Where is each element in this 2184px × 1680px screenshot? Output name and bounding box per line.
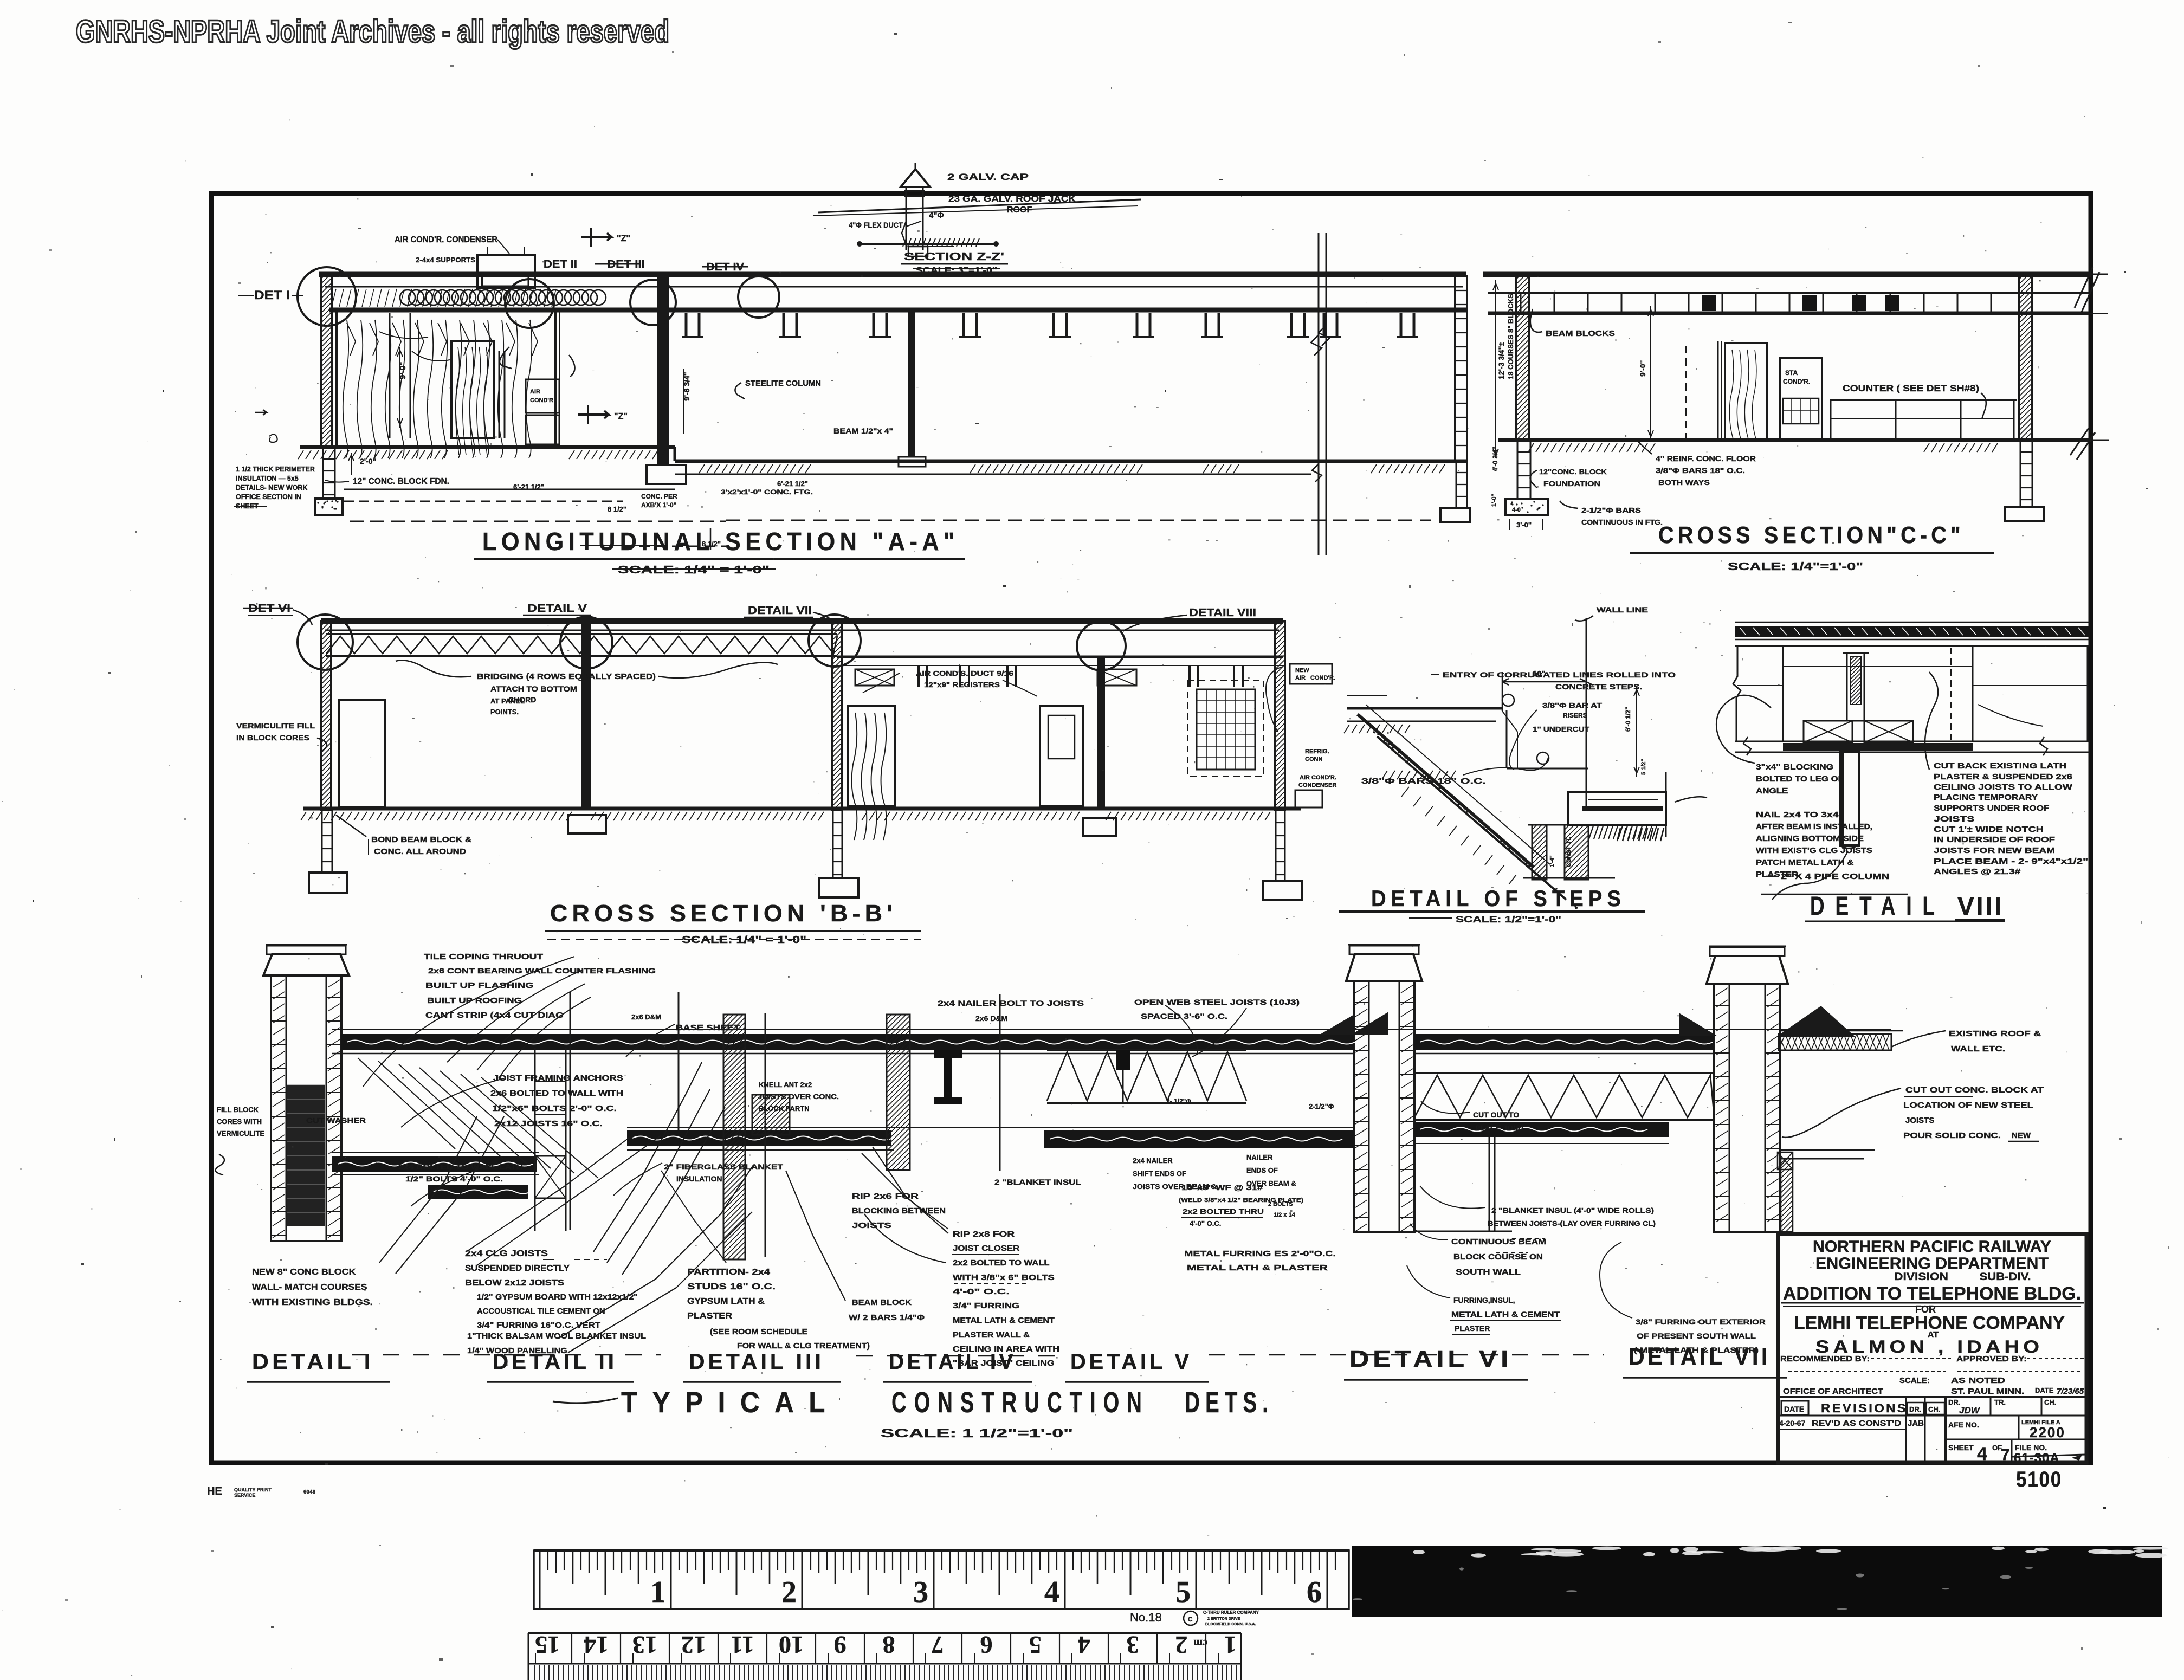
svg-text:5 1/2": 5 1/2" <box>1640 759 1647 775</box>
svg-text:2 "BLANKET INSUL: 2 "BLANKET INSUL <box>994 1178 1082 1186</box>
svg-text:AIR: AIR <box>530 389 540 395</box>
svg-text:3/8"Φ BARS 18" O.C.: 3/8"Φ BARS 18" O.C. <box>1361 777 1486 786</box>
svg-text:12"x9" REGISTERS: 12"x9" REGISTERS <box>924 681 1000 689</box>
svg-text:11: 11 <box>731 1631 754 1659</box>
svg-text:BRIDGING (4 ROWS EQUALLY SPA: BRIDGING (4 ROWS EQUALLY SPACED) <box>477 672 656 681</box>
svg-text:BEAM 1/2"x 4": BEAM 1/2"x 4" <box>833 427 893 435</box>
svg-text:6048: 6048 <box>303 1489 316 1495</box>
svg-text:NAIL 2x4 TO 3x4: NAIL 2x4 TO 3x4 <box>1756 810 1839 819</box>
svg-text:NEW: NEW <box>2012 1131 2031 1140</box>
svg-text:FURRING,INSUL,: FURRING,INSUL, <box>1453 1296 1515 1304</box>
svg-text:"Z": "Z" <box>614 412 628 421</box>
svg-text:1/2"x6" BOLTS 2'-0" O.C.: 1/2"x6" BOLTS 2'-0" O.C. <box>492 1104 617 1113</box>
svg-text:1'-0": 1'-0" <box>1491 494 1497 507</box>
svg-text:BLOCK PARTN: BLOCK PARTN <box>759 1104 810 1113</box>
svg-text:1" UNDERCUT: 1" UNDERCUT <box>1533 725 1589 733</box>
svg-text:STEELITE COLUMN: STEELITE COLUMN <box>745 379 821 388</box>
svg-text:LEMHI TELEPHONE COMPANY: LEMHI TELEPHONE COMPANY <box>1794 1313 2065 1333</box>
svg-text:PLASTER: PLASTER <box>1455 1324 1490 1333</box>
svg-text:SOUTH WALL: SOUTH WALL <box>1456 1268 1521 1277</box>
svg-text:STUDS 16" O.C.: STUDS 16" O.C. <box>687 1282 776 1291</box>
svg-text:COND'R: COND'R <box>530 397 553 404</box>
svg-text:8: 8 <box>883 1631 895 1659</box>
svg-text:SUPPORTS UNDER ROOF: SUPPORTS UNDER ROOF <box>1934 804 2050 813</box>
svg-text:GYPSUM LATH &: GYPSUM LATH & <box>687 1297 765 1306</box>
svg-text:2x4 NAILER: 2x4 NAILER <box>1133 1156 1173 1165</box>
svg-text:4: 4 <box>1078 1631 1090 1659</box>
svg-text:DET I: DET I <box>254 288 290 302</box>
svg-text:12" CONC. BLOCK FDN.: 12" CONC. BLOCK FDN. <box>353 477 449 486</box>
svg-text:BOTH WAYS: BOTH WAYS <box>1658 478 1710 487</box>
svg-text:3/4" FURRING: 3/4" FURRING <box>953 1302 1019 1310</box>
svg-text:2x6 CONT BEARING WALL COUNTER: 2x6 CONT BEARING WALL COUNTER FLASHING <box>428 966 656 975</box>
svg-text:SCALE: 1/4" = 1'-0": SCALE: 1/4" = 1'-0" <box>618 564 770 576</box>
svg-text:3/8"Φ BAR AT: 3/8"Φ BAR AT <box>1542 701 1602 709</box>
svg-text:REFRIG.: REFRIG. <box>1305 748 1329 755</box>
svg-text:9'-0": 9'-0" <box>1638 360 1647 377</box>
svg-text:2 "BLANKET INSUL (4'-0" WIDE R: 2 "BLANKET INSUL (4'-0" WIDE ROLLS) <box>1491 1207 1654 1214</box>
svg-text:ENTRY OF CORRUGATED LINES ROLL: ENTRY OF CORRUGATED LINES ROLLED INTO <box>1443 670 1676 679</box>
svg-text:SERVICE: SERVICE <box>234 1492 255 1498</box>
svg-text:AIR COND'R. CONDENSER: AIR COND'R. CONDENSER <box>395 235 497 244</box>
svg-text:5100: 5100 <box>2016 1468 2062 1491</box>
svg-text:C: C <box>1188 1616 1193 1623</box>
svg-text:AFE NO.: AFE NO. <box>1948 1420 1979 1429</box>
svg-text:2x6 D&M: 2x6 D&M <box>631 1013 661 1021</box>
svg-text:1: 1 <box>1224 1631 1237 1659</box>
svg-text:CONST JT.: CONST JT. <box>1566 837 1572 867</box>
svg-text:ENGINEERING DEPARTMENT: ENGINEERING DEPARTMENT <box>1815 1255 2049 1272</box>
svg-text:FOR WALL & CLG TREATMENT): FOR WALL & CLG TREATMENT) <box>737 1342 870 1351</box>
svg-text:AIR: AIR <box>1295 675 1306 681</box>
svg-text:REV'D AS CONST'D: REV'D AS CONST'D <box>1812 1419 1901 1428</box>
svg-text:CONC. ALL AROUND: CONC. ALL AROUND <box>374 847 466 856</box>
svg-text:CONN: CONN <box>1305 756 1322 763</box>
svg-text:VERMICULITE: VERMICULITE <box>217 1129 264 1138</box>
svg-text:STA: STA <box>1785 369 1798 377</box>
svg-text:2- 1/2"Φ: 2- 1/2"Φ <box>1166 1097 1191 1105</box>
svg-text:ROOF: ROOF <box>1007 205 1032 215</box>
svg-text:15: 15 <box>535 1631 560 1659</box>
svg-text:SHIFT ENDS OF: SHIFT ENDS OF <box>1133 1169 1186 1178</box>
svg-text:C-THRU RULER COMPANY: C-THRU RULER COMPANY <box>1203 1610 1259 1615</box>
svg-text:DR.: DR. <box>1909 1405 1921 1413</box>
svg-text:SUB-DIV.: SUB-DIV. <box>1980 1271 2031 1283</box>
svg-text:No.18: No.18 <box>1130 1611 1162 1624</box>
svg-text:DETAIL VII: DETAIL VII <box>1629 1343 1771 1370</box>
svg-text:JOISTS FOR NEW BEAM: JOISTS FOR NEW BEAM <box>1934 847 2055 855</box>
svg-text:DETAIL VIII: DETAIL VIII <box>1189 607 1256 619</box>
svg-text:W/ 2 BARS 1/4"Φ: W/ 2 BARS 1/4"Φ <box>849 1313 925 1322</box>
svg-text:VERMICULITE FILL: VERMICULITE FILL <box>236 721 315 730</box>
svg-text:DETAIL II: DETAIL II <box>493 1350 617 1374</box>
svg-text:AIR COND'R.: AIR COND'R. <box>1300 774 1336 781</box>
svg-text:METAL FURRING ES 2'-0"O.C.: METAL FURRING ES 2'-0"O.C. <box>1184 1249 1336 1258</box>
svg-text:BLOCK COURSE ON: BLOCK COURSE ON <box>1453 1253 1543 1262</box>
svg-text:SECTION Z-Z': SECTION Z-Z' <box>904 251 1004 263</box>
svg-text:1"THICK BALSAM WOOL BLANKET IN: 1"THICK BALSAM WOOL BLANKET INSUL <box>467 1332 646 1341</box>
svg-text:LONGITUDINAL SECTION "A-A": LONGITUDINAL SECTION "A-A" <box>482 527 959 555</box>
svg-text:2-1/2"Φ: 2-1/2"Φ <box>1309 1102 1334 1110</box>
svg-text:CONC. PER: CONC. PER <box>641 493 677 500</box>
svg-text:SUSPENDED DIRECTLY: SUSPENDED DIRECTLY <box>465 1264 570 1273</box>
svg-text:TR.: TR. <box>1994 1398 2006 1406</box>
svg-text:TILE COPING THRUOUT: TILE COPING THRUOUT <box>424 952 543 961</box>
svg-text:DETAILS- NEW WORK: DETAILS- NEW WORK <box>236 484 307 492</box>
svg-text:23 GA. GALV. ROOF JACK: 23 GA. GALV. ROOF JACK <box>948 195 1076 204</box>
svg-text:2x6 D&M: 2x6 D&M <box>975 1014 1007 1023</box>
svg-text:DATE: DATE <box>1784 1405 1804 1413</box>
svg-text:INSULATION: INSULATION <box>676 1174 722 1183</box>
svg-text:POINTS.: POINTS. <box>490 708 519 716</box>
svg-text:PLASTER WALL &: PLASTER WALL & <box>953 1331 1030 1340</box>
svg-text:AXB'X 1'-0": AXB'X 1'-0" <box>641 501 676 509</box>
svg-text:5: 5 <box>1175 1575 1191 1609</box>
svg-text:RIP 2x6 FOR: RIP 2x6 FOR <box>852 1192 919 1201</box>
svg-text:2" FIBERGLASS BLANKET: 2" FIBERGLASS BLANKET <box>664 1162 784 1171</box>
svg-text:COND'R.: COND'R. <box>1310 675 1335 681</box>
svg-text:"Z": "Z" <box>617 234 630 243</box>
svg-text:PATCH METAL LATH &: PATCH METAL LATH & <box>1756 858 1854 867</box>
svg-text:PLACE JOIST: PLACE JOIST <box>1475 1123 1525 1132</box>
svg-text:METAL LATH & CEMENT: METAL LATH & CEMENT <box>1451 1310 1560 1319</box>
svg-text:LOCATION OF NEW STEEL: LOCATION OF NEW STEEL <box>1903 1101 2033 1110</box>
svg-text:JOISTS OVER CONC.: JOISTS OVER CONC. <box>758 1093 839 1101</box>
svg-text:4'-0" O.C.: 4'-0" O.C. <box>953 1288 1010 1296</box>
svg-text:6: 6 <box>1307 1575 1322 1609</box>
svg-text:SALMON , IDAHO: SALMON , IDAHO <box>1815 1337 2043 1356</box>
svg-text:7: 7 <box>932 1631 944 1659</box>
svg-text:HE: HE <box>207 1485 222 1497</box>
svg-text:3/8" FURRING OUT EXTERIOR: 3/8" FURRING OUT EXTERIOR <box>1636 1318 1766 1326</box>
svg-text:APPROVED BY:: APPROVED BY: <box>1956 1354 2027 1364</box>
svg-text:DETAIL VI: DETAIL VI <box>1349 1346 1512 1372</box>
svg-text:2x2 BOLTED THRU: 2x2 BOLTED THRU <box>1183 1207 1264 1216</box>
svg-text:5: 5 <box>1029 1631 1042 1659</box>
svg-text:3"x4" BLOCKING: 3"x4" BLOCKING <box>1756 763 1833 772</box>
svg-text:BEAM BLOCK: BEAM BLOCK <box>852 1298 912 1307</box>
svg-text:CONCRETE STEPS.: CONCRETE STEPS. <box>1555 682 1642 691</box>
svg-text:RIP 2x8 FOR: RIP 2x8 FOR <box>953 1230 1015 1239</box>
svg-text:ENDS OF: ENDS OF <box>1246 1166 1278 1174</box>
svg-text:COND'R.: COND'R. <box>1783 378 1810 385</box>
svg-text:CROSS SECTION 'B-B': CROSS SECTION 'B-B' <box>550 900 897 927</box>
svg-text:2-4x4 SUPPORTS: 2-4x4 SUPPORTS <box>416 256 475 264</box>
svg-text:6: 6 <box>980 1631 993 1659</box>
svg-text:CORES WITH: CORES WITH <box>217 1117 262 1126</box>
svg-text:WITH 3/8"x 6" BOLTS: WITH 3/8"x 6" BOLTS <box>953 1274 1055 1282</box>
svg-text:1: 1 <box>650 1575 665 1609</box>
svg-text:WITH EXIST'G CLG JOISTS: WITH EXIST'G CLG JOISTS <box>1756 846 1872 855</box>
svg-text:61-30A: 61-30A <box>2014 1451 2060 1465</box>
svg-text:SCALE: 1/4"=1'-0": SCALE: 1/4"=1'-0" <box>1728 561 1863 573</box>
svg-text:EXISTING ROOF &: EXISTING ROOF & <box>1949 1029 2041 1038</box>
svg-text:1/2" BOLTS 4'-0" O.C.: 1/2" BOLTS 4'-0" O.C. <box>405 1175 503 1183</box>
svg-text:FILL BLOCK: FILL BLOCK <box>217 1106 259 1114</box>
svg-text:1/2 x 14: 1/2 x 14 <box>1274 1212 1296 1218</box>
svg-text:PARTITION- 2x4: PARTITION- 2x4 <box>687 1268 770 1277</box>
svg-text:JOIST CLOSER: JOIST CLOSER <box>953 1244 1020 1253</box>
svg-text:7: 7 <box>2001 1446 2010 1464</box>
svg-text:DATE: DATE <box>2035 1386 2054 1394</box>
svg-text:10: 10 <box>779 1631 804 1659</box>
svg-text:CONDENSER: CONDENSER <box>1298 782 1336 789</box>
svg-text:BELOW 2x12 JOISTS: BELOW 2x12 JOISTS <box>465 1278 564 1288</box>
svg-text:VIII: VIII <box>1957 892 2004 920</box>
svg-text:KNELL ANT 2x2: KNELL ANT 2x2 <box>759 1081 812 1089</box>
svg-text:(SEE ROOM SCHEDULE: (SEE ROOM SCHEDULE <box>710 1328 807 1336</box>
svg-text:DET II: DET II <box>544 259 577 270</box>
svg-text:BUILT UP ROOFING: BUILT UP ROOFING <box>427 996 522 1005</box>
svg-text:2 GALV. CAP: 2 GALV. CAP <box>947 172 1029 182</box>
svg-text:WALL ETC.: WALL ETC. <box>1951 1044 2005 1054</box>
svg-text:JOISTS: JOISTS <box>1905 1116 1934 1125</box>
svg-text:AIR COND'S. DUCT 9/16: AIR COND'S. DUCT 9/16 <box>916 669 1013 677</box>
svg-text:2x6 BOLTED TO WALL WITH: 2x6 BOLTED TO WALL WITH <box>490 1089 623 1098</box>
svg-text:QUALITY PRINT: QUALITY PRINT <box>234 1487 272 1492</box>
svg-text:POUR SOLID CONC.: POUR SOLID CONC. <box>1903 1131 2001 1140</box>
svg-text:2 BOLTS: 2 BOLTS <box>1268 1201 1293 1207</box>
svg-text:NORTHERN PACIFIC RAILWAY: NORTHERN PACIFIC RAILWAY <box>1813 1238 2051 1256</box>
svg-text:WALL LINE: WALL LINE <box>1597 605 1648 614</box>
svg-text:DETAIL: DETAIL <box>1810 892 1946 921</box>
svg-text:12: 12 <box>681 1631 706 1659</box>
svg-text:AFTER BEAM IS INSTALLED,: AFTER BEAM IS INSTALLED, <box>1756 822 1872 831</box>
svg-text:PLASTER & SUSPENDED 2x6: PLASTER & SUSPENDED 2x6 <box>1934 773 2072 781</box>
svg-text:IN BLOCK CORES: IN BLOCK CORES <box>236 733 309 742</box>
svg-text:9: 9 <box>834 1631 847 1659</box>
svg-text:13: 13 <box>632 1631 657 1659</box>
svg-text:REVISIONS: REVISIONS <box>1821 1401 1908 1415</box>
svg-text:12"CONC. BLOCK: 12"CONC. BLOCK <box>1539 468 1607 476</box>
svg-text:2200: 2200 <box>2030 1424 2065 1440</box>
svg-text:AS NOTED: AS NOTED <box>1951 1376 2005 1385</box>
svg-text:2'-0": 2'-0" <box>360 457 376 466</box>
svg-text:WITH EXISTING BLDGS.: WITH EXISTING BLDGS. <box>252 1298 373 1307</box>
svg-text:NAILER: NAILER <box>1246 1153 1273 1161</box>
svg-text:CONTINUOUS BEAM: CONTINUOUS BEAM <box>1451 1238 1546 1246</box>
svg-text:GNRHS-NPRHA Joint Archives - a: GNRHS-NPRHA Joint Archives - all rights … <box>76 14 669 49</box>
svg-text:DIVISION: DIVISION <box>1894 1271 1948 1283</box>
svg-text:ADDITION TO TELEPHONE BLDG.: ADDITION TO TELEPHONE BLDG. <box>1783 1283 2081 1303</box>
svg-text:BLOCKING BETWEEN: BLOCKING BETWEEN <box>852 1206 946 1216</box>
svg-text:12'-3 3/4"±: 12'-3 3/4"± <box>1497 342 1505 379</box>
svg-text:METAL LATH & CEMENT: METAL LATH & CEMENT <box>953 1316 1055 1325</box>
svg-text:PLACING TEMPORARY: PLACING TEMPORARY <box>1934 793 2038 802</box>
svg-text:OFFICE SECTION IN: OFFICE SECTION IN <box>236 493 301 501</box>
svg-text:NEW 8" CONC BLOCK: NEW 8" CONC BLOCK <box>252 1268 356 1277</box>
svg-text:4-20-67: 4-20-67 <box>1779 1419 1805 1427</box>
svg-text:ANGLE: ANGLE <box>1756 786 1788 796</box>
svg-text:DETAIL IV: DETAIL IV <box>889 1350 1016 1374</box>
svg-text:1/2" GYPSUM BOARD WITH 12x12x1: 1/2" GYPSUM BOARD WITH 12x12x1/2" <box>477 1293 638 1302</box>
svg-text:2x4 BOLTED TO WALL LATH: 2x4 BOLTED TO WALL LATH <box>398 1163 523 1171</box>
svg-text:2: 2 <box>781 1575 797 1609</box>
svg-text:INSULATION — 5x5: INSULATION — 5x5 <box>236 475 299 482</box>
svg-text:6'-0 1/2": 6'-0 1/2" <box>1624 707 1632 732</box>
svg-text:SHEET: SHEET <box>1948 1443 1974 1452</box>
svg-text:ACCOUSTICAL TILE CEMENT ON: ACCOUSTICAL TILE CEMENT ON <box>477 1307 605 1316</box>
svg-text:AT PANEL: AT PANEL <box>490 697 525 705</box>
svg-text:ST. PAUL MINN.: ST. PAUL MINN. <box>1951 1387 2024 1396</box>
svg-text:BASE SHEET: BASE SHEET <box>676 1023 740 1032</box>
svg-text:3'x2'x1'-0" CONC. FTG.: 3'x2'x1'-0" CONC. FTG. <box>721 488 813 496</box>
svg-text:14: 14 <box>584 1631 609 1659</box>
svg-text:4"Φ: 4"Φ <box>929 211 944 220</box>
svg-text:ATTACH TO BOTTOM: ATTACH TO BOTTOM <box>490 684 577 693</box>
svg-text:2x2 BOLTED TO WALL: 2x2 BOLTED TO WALL <box>953 1259 1050 1268</box>
svg-text:4'-0 3/4": 4'-0 3/4" <box>1491 447 1499 471</box>
svg-text:JOIST FRAMING ANCHORS: JOIST FRAMING ANCHORS <box>493 1074 623 1083</box>
svg-text:4'-0" O.C.: 4'-0" O.C. <box>1190 1219 1221 1227</box>
svg-text:2-1/2"Φ BARS: 2-1/2"Φ BARS <box>1581 506 1641 514</box>
svg-text:CEILING JOISTS TO ALLOW: CEILING JOISTS TO ALLOW <box>1934 783 2072 792</box>
svg-text:3'-0": 3'-0" <box>1516 521 1532 529</box>
svg-text:SCALE: 1/2"=1'-0": SCALE: 1/2"=1'-0" <box>1456 914 1561 925</box>
svg-text:6'-21 1/2": 6'-21 1/2" <box>777 480 808 488</box>
svg-text:METAL LATH & PLASTER: METAL LATH & PLASTER <box>1187 1263 1328 1272</box>
svg-text:DETAIL III: DETAIL III <box>689 1350 824 1374</box>
svg-text:2: 2 <box>1175 1631 1188 1659</box>
svg-text:BOLTED TO LEG OF: BOLTED TO LEG OF <box>1756 774 1844 784</box>
svg-text:DETAIL OF STEPS: DETAIL OF STEPS <box>1371 886 1626 911</box>
svg-text:JAB: JAB <box>1908 1419 1924 1428</box>
svg-text:2 BRITTON DRIVE: 2 BRITTON DRIVE <box>1207 1617 1240 1621</box>
svg-text:OF PRESENT SOUTH WALL: OF PRESENT SOUTH WALL <box>1637 1332 1756 1340</box>
svg-text:SPACED 3'-6" O.C.: SPACED 3'-6" O.C. <box>1141 1012 1227 1020</box>
svg-text:1 1/2 THICK PERIMETER: 1 1/2 THICK PERIMETER <box>236 466 315 473</box>
svg-text:4-0: 4-0 <box>1512 507 1521 513</box>
svg-text:2x12 JOISTS 16" O.C.: 2x12 JOISTS 16" O.C. <box>494 1120 603 1128</box>
svg-text:OFFICE OF ARCHITECT: OFFICE OF ARCHITECT <box>1783 1387 1883 1396</box>
svg-text:BEAM BLOCKS: BEAM BLOCKS <box>1546 329 1615 338</box>
svg-text:1'-4": 1'-4" <box>1549 855 1555 867</box>
svg-text:ANGLES @ 21.3#: ANGLES @ 21.3# <box>1934 868 2020 876</box>
svg-text:FOUNDATION: FOUNDATION <box>1543 480 1600 488</box>
svg-text:3: 3 <box>913 1575 928 1609</box>
svg-text:3/8"Φ BARS 18" O.C.: 3/8"Φ BARS 18" O.C. <box>1656 466 1745 475</box>
svg-text:BUILT UP FLASHING: BUILT UP FLASHING <box>425 981 534 990</box>
svg-text:OPEN WEB STEEL JOISTS (10J3): OPEN WEB STEEL JOISTS (10J3) <box>1134 998 1300 1006</box>
svg-text:SCALE: 1 1/2"=1'-0": SCALE: 1 1/2"=1'-0" <box>881 1426 1073 1440</box>
svg-text:SCALE:: SCALE: <box>1899 1376 1930 1385</box>
svg-text:4"Φ FLEX DUCT: 4"Φ FLEX DUCT <box>849 221 903 229</box>
svg-text:CONTINUOUS IN FTG.: CONTINUOUS IN FTG. <box>1581 518 1663 526</box>
svg-text:BLOOMFIELD CONN. U.S.A.: BLOOMFIELD CONN. U.S.A. <box>1205 1623 1256 1626</box>
svg-text:CUT BACK EXISTING LATH: CUT BACK EXISTING LATH <box>1934 762 2066 771</box>
svg-text:CANT STRIP (4x4 CUT DIAG: CANT STRIP (4x4 CUT DIAG <box>425 1011 564 1020</box>
svg-text:CROSS SECTION"C-C": CROSS SECTION"C-C" <box>1658 522 1965 548</box>
svg-text:BETWEEN JOISTS-(LAY OVER FURRI: BETWEEN JOISTS-(LAY OVER FURRING CL) <box>1488 1220 1656 1227</box>
svg-text:CONSTRUCTION: CONSTRUCTION <box>891 1386 1149 1419</box>
svg-text:IN UNDERSIDE OF ROOF: IN UNDERSIDE OF ROOF <box>1934 836 2055 844</box>
svg-text:SCALE: 1/4" = 1'-0": SCALE: 1/4" = 1'-0" <box>682 934 806 945</box>
svg-text:CH.: CH. <box>1928 1405 1940 1413</box>
svg-text:3/4" FURRING 16"O.C. VERT: 3/4" FURRING 16"O.C. VERT <box>477 1321 600 1330</box>
svg-text:4: 4 <box>1044 1575 1059 1609</box>
svg-text:JDW: JDW <box>1959 1405 1981 1416</box>
svg-text:COUNTER ( SEE DET SH#8): COUNTER ( SEE DET SH#8) <box>1843 383 1979 393</box>
svg-text:2x4 CLG JOISTS: 2x4 CLG JOISTS <box>465 1249 548 1258</box>
svg-text:CUT OUT CONC. BLOCK AT: CUT OUT CONC. BLOCK AT <box>1905 1085 2044 1095</box>
svg-text:3: 3 <box>1127 1631 1139 1659</box>
svg-text:DETS.: DETS. <box>1185 1386 1274 1419</box>
svg-text:DETAIL VII: DETAIL VII <box>748 605 812 617</box>
svg-text:WALL- MATCH COURSES: WALL- MATCH COURSES <box>252 1283 367 1292</box>
svg-text:4: 4 <box>1977 1444 1987 1464</box>
svg-text:CUT WASHER: CUT WASHER <box>306 1116 366 1125</box>
svg-text:NEW: NEW <box>1295 667 1309 674</box>
svg-text:RECOMMENDED BY:: RECOMMENDED BY: <box>1780 1354 1870 1364</box>
svg-text:4" REINF. CONC. FLOOR: 4" REINF. CONC. FLOOR <box>1656 454 1756 463</box>
svg-text:CUT 1'± WIDE NOTCH: CUT 1'± WIDE NOTCH <box>1934 825 2044 834</box>
svg-text:2" X 4 PIPE COLUMN: 2" X 4 PIPE COLUMN <box>1781 872 1889 881</box>
svg-text:2x4 NAILER BOLT TO JOISTS: 2x4 NAILER BOLT TO JOISTS <box>938 999 1084 1007</box>
svg-text:RISERS: RISERS <box>1563 712 1587 719</box>
svg-text:DETAIL V: DETAIL V <box>1070 1350 1192 1374</box>
svg-text:PLACE BEAM - 2- 9"x4"x1/2": PLACE BEAM - 2- 9"x4"x1/2" <box>1934 857 2088 866</box>
svg-text:18 COURSES 8" BLOCKS: 18 COURSES 8" BLOCKS <box>1507 294 1515 379</box>
svg-text:PLASTER: PLASTER <box>687 1311 732 1321</box>
svg-text:BOND BEAM BLOCK &: BOND BEAM BLOCK & <box>371 835 471 844</box>
svg-text:8 1/2": 8 1/2" <box>608 505 626 513</box>
svg-text:OVER BEAM &: OVER BEAM & <box>1246 1179 1296 1187</box>
svg-text:TYPICAL: TYPICAL <box>621 1386 840 1419</box>
svg-text:JOISTS: JOISTS <box>1934 815 1975 824</box>
svg-text:CUT OUT TO: CUT OUT TO <box>1473 1110 1519 1119</box>
svg-text:CH.: CH. <box>2044 1398 2056 1406</box>
svg-text:ALIGNING BOTTOM SIDE: ALIGNING BOTTOM SIDE <box>1756 834 1864 843</box>
svg-text:7/23/65: 7/23/65 <box>2057 1387 2084 1396</box>
svg-text:DETAIL I: DETAIL I <box>252 1350 374 1374</box>
